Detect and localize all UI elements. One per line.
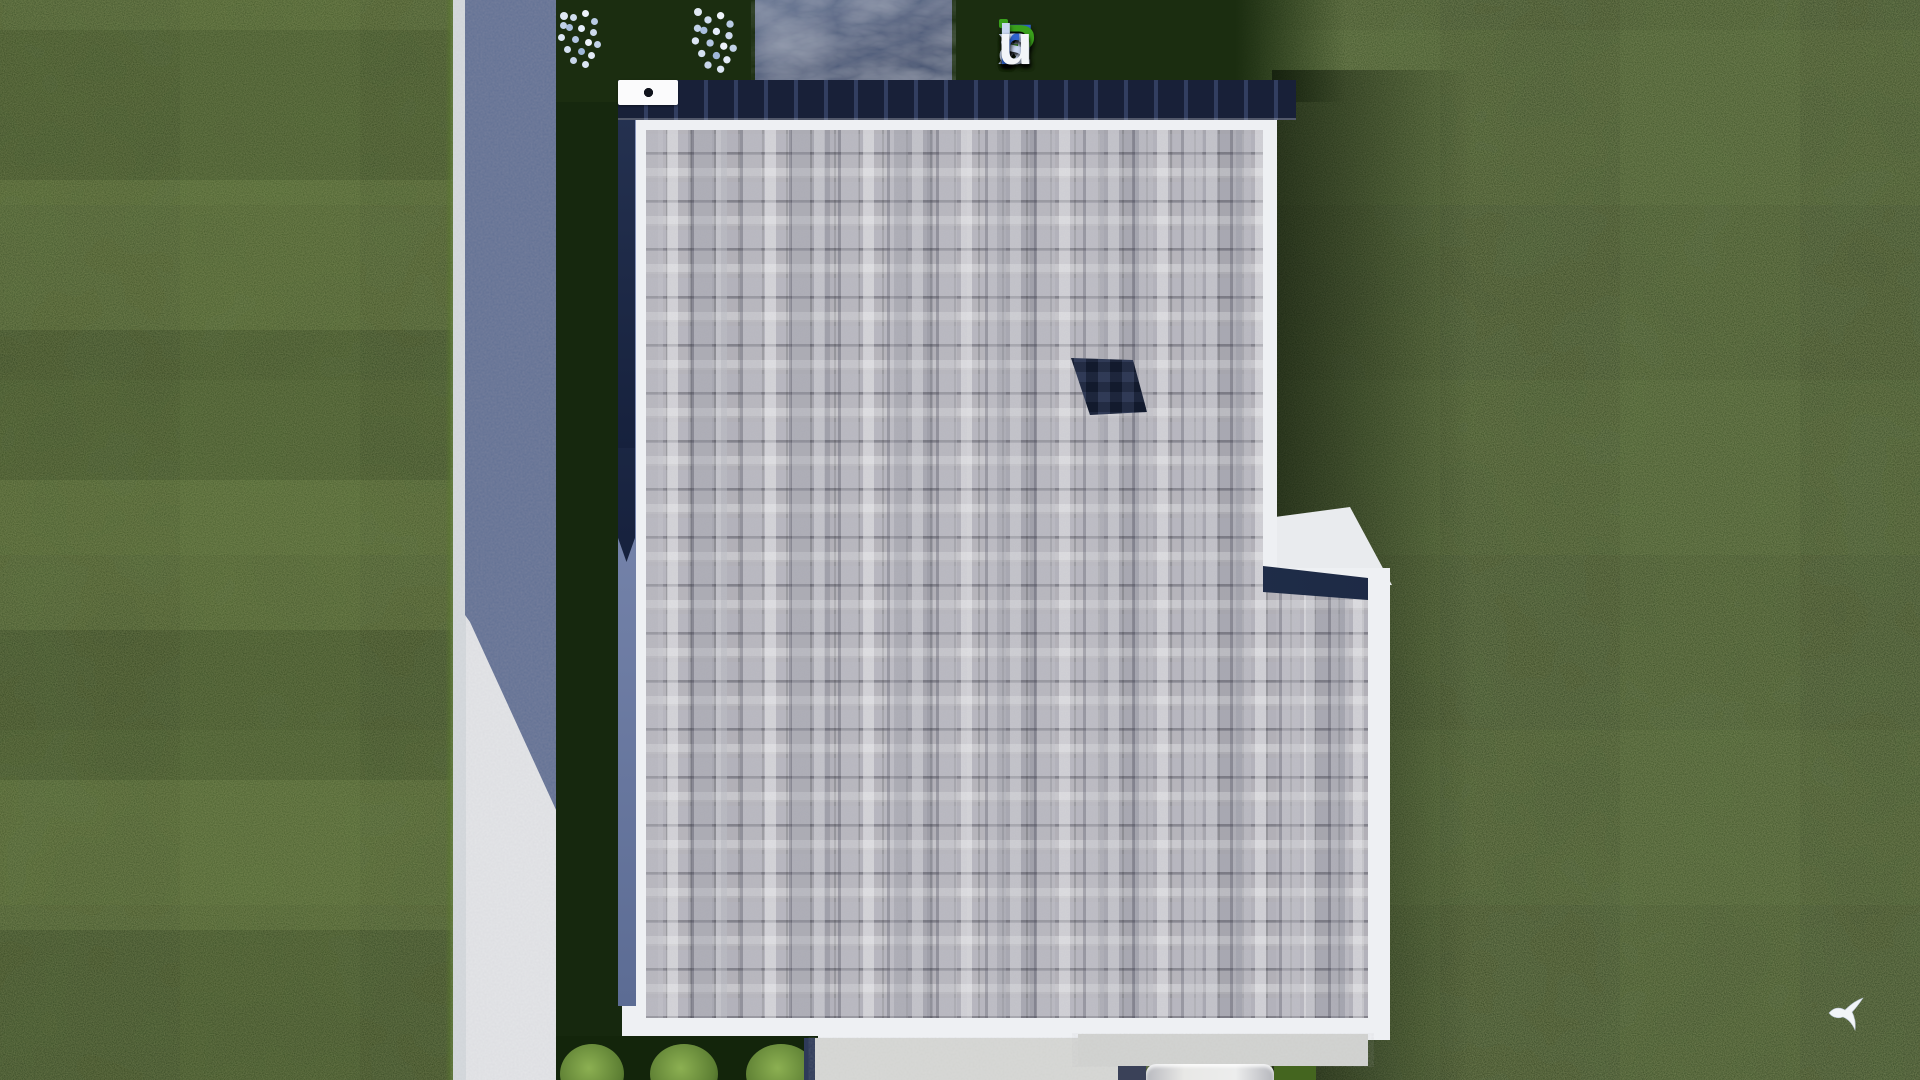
roof-skylight-strip <box>618 80 1296 120</box>
lawn-left-plot <box>0 0 457 1080</box>
hedge-bush <box>650 1044 718 1080</box>
chimney-cap <box>618 80 678 105</box>
flower-bush <box>694 8 702 16</box>
flower-cluster <box>694 14 701 21</box>
lawn-patch <box>1274 1066 1316 1080</box>
flower-bush <box>560 12 568 20</box>
road-shadow <box>453 0 557 1080</box>
carport-shade <box>1118 1066 1146 1080</box>
driveway-strip <box>1078 1034 1368 1066</box>
hedge <box>556 1036 818 1080</box>
hedge-bush <box>560 1044 624 1080</box>
bird-icon <box>1826 996 1866 1036</box>
brand-logo: FıxPlans.ru <box>998 16 1358 78</box>
sidewalk-road <box>453 0 557 1080</box>
flower-cluster <box>560 12 567 19</box>
brand-letter: u <box>998 16 1034 74</box>
parked-car <box>1146 1064 1274 1080</box>
roof-gutter-inset-lower <box>618 80 635 448</box>
road-curb <box>453 0 466 1080</box>
house-roof <box>618 80 1393 1042</box>
chimney-vent <box>644 88 653 97</box>
aerial-render: FıxPlans.ru <box>0 0 1920 1080</box>
